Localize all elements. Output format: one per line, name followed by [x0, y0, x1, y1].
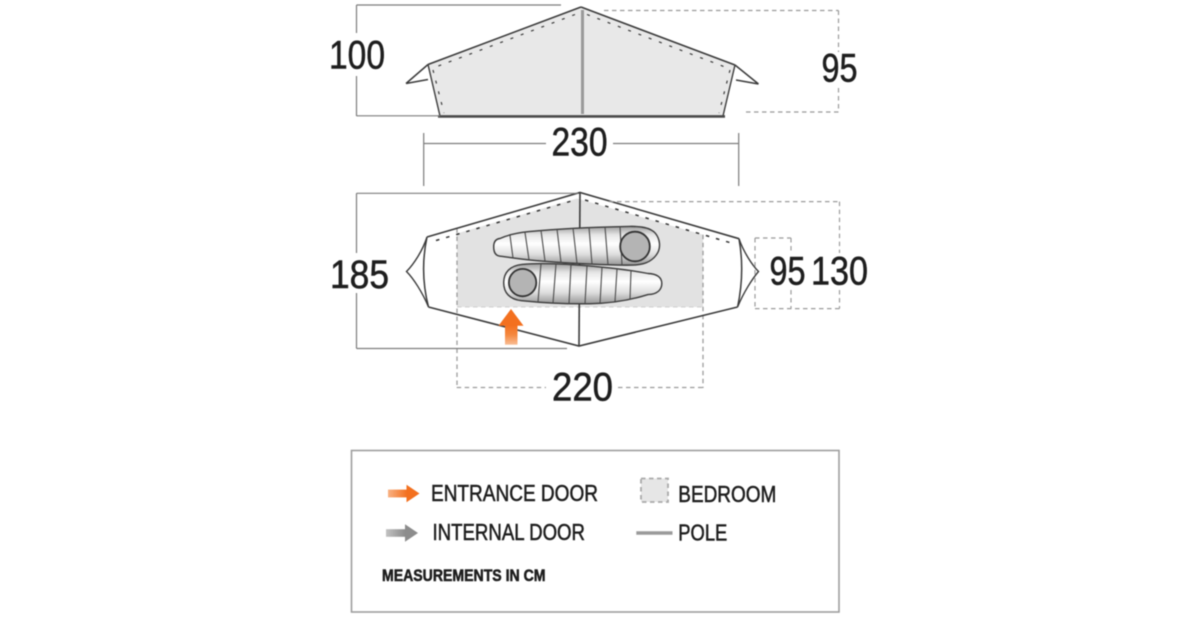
svg-text:130: 130	[811, 250, 868, 294]
svg-text:MEASUREMENTS IN CM: MEASUREMENTS IN CM	[382, 567, 546, 585]
svg-text:230: 230	[552, 121, 608, 165]
svg-text:95: 95	[770, 250, 806, 294]
svg-text:95: 95	[822, 47, 858, 91]
svg-text:ENTRANCE DOOR: ENTRANCE DOOR	[431, 480, 598, 506]
svg-text:INTERNAL DOOR: INTERNAL DOOR	[433, 519, 586, 545]
svg-text:220: 220	[552, 366, 613, 410]
svg-text:BEDROOM: BEDROOM	[678, 481, 776, 507]
svg-text:100: 100	[329, 34, 385, 78]
svg-text:POLE: POLE	[678, 519, 727, 545]
svg-text:185: 185	[330, 253, 389, 297]
